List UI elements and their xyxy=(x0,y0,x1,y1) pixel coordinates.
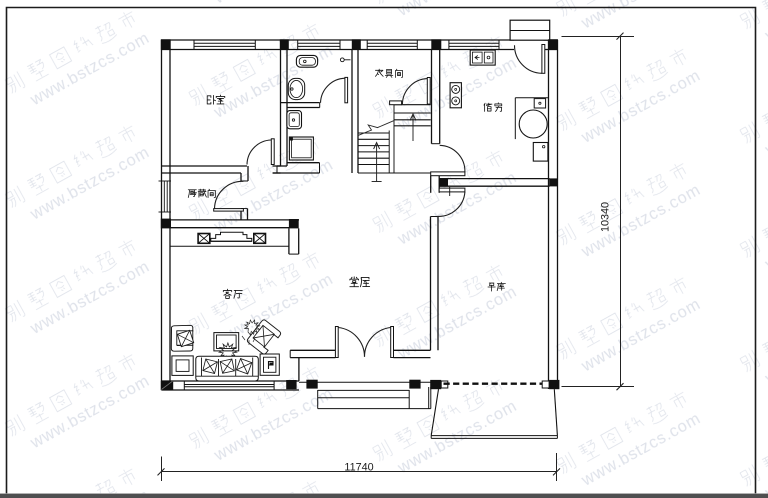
svg-text:10340: 10340 xyxy=(600,202,612,232)
svg-text:11740: 11740 xyxy=(344,461,373,473)
